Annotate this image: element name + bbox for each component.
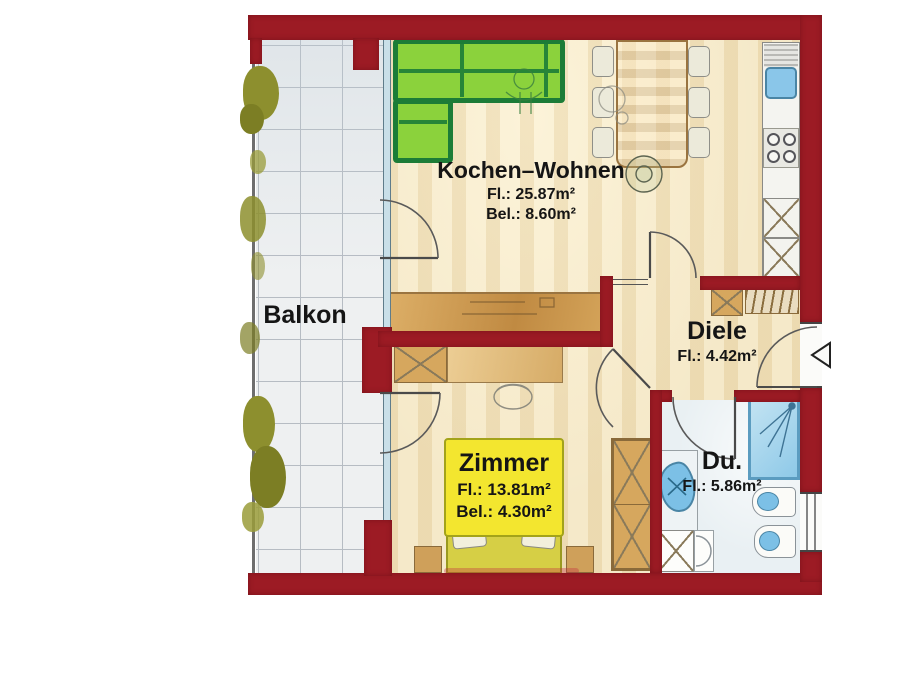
door-leaf-bedroom bbox=[613, 349, 650, 388]
door-arc-bedroom bbox=[596, 349, 613, 427]
diele-area: Fl.: 4.42m² bbox=[662, 347, 772, 367]
floorplan-canvas: Balkon Kochen–Wohnen Fl.: 25.87m² Bel.: … bbox=[0, 0, 900, 674]
zimmer-light-area: Bel.: 4.30m² bbox=[446, 501, 562, 522]
room-label-balkon: Balkon bbox=[250, 300, 360, 331]
dusche-title: Du. bbox=[672, 446, 772, 477]
door-arc-living-hall bbox=[650, 232, 696, 278]
zimmer-area: Fl.: 13.81m² bbox=[446, 479, 562, 500]
zimmer-title: Zimmer bbox=[446, 448, 562, 479]
room-label-diele: Diele Fl.: 4.42m² bbox=[662, 316, 772, 367]
desk-chair-sketch bbox=[494, 384, 532, 409]
room-label-dusche: Du. Fl.: 5.86m² bbox=[672, 446, 772, 497]
sofa-cushion-lines bbox=[399, 44, 559, 122]
washer-door-arc bbox=[696, 536, 711, 566]
room-label-zimmer: Zimmer Fl.: 13.81m² Bel.: 4.30m² bbox=[444, 438, 564, 537]
door-arc-balcony-bedroom bbox=[380, 393, 440, 453]
kochen-wohnen-area: Fl.: 25.87m² bbox=[421, 185, 641, 205]
room-label-kochen-wohnen: Kochen–Wohnen Fl.: 25.87m² Bel.: 8.60m² bbox=[421, 156, 641, 225]
kochen-wohnen-title: Kochen–Wohnen bbox=[421, 156, 641, 185]
dusche-area: Fl.: 5.86m² bbox=[672, 477, 772, 497]
diele-title: Diele bbox=[662, 316, 772, 347]
kochen-wohnen-light-area: Bel.: 8.60m² bbox=[421, 205, 641, 225]
table-setting-sketch bbox=[599, 86, 628, 124]
person-sketch bbox=[506, 69, 542, 114]
entrance-direction-triangle bbox=[812, 343, 830, 367]
balkon-title: Balkon bbox=[250, 300, 360, 331]
sideboard-decor-sketch bbox=[462, 298, 554, 314]
